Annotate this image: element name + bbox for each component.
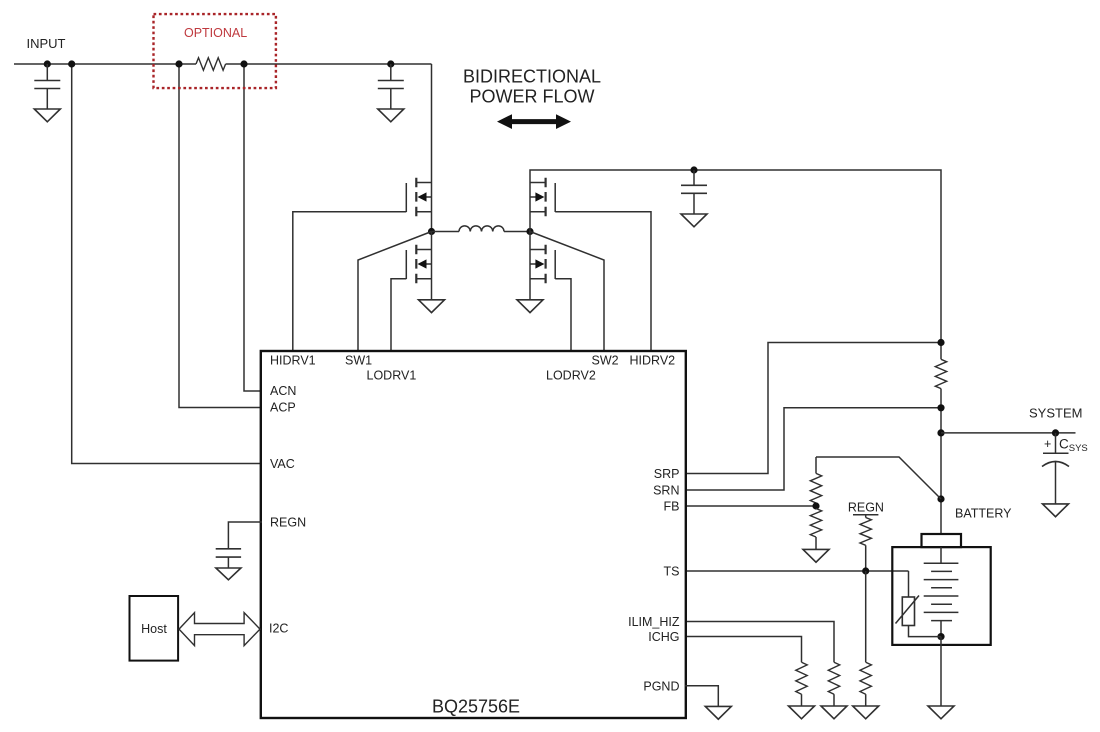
- svg-text:I2C: I2C: [269, 622, 288, 636]
- svg-text:LODRV2: LODRV2: [546, 369, 596, 383]
- svg-text:BIDIRECTIONAL: BIDIRECTIONAL: [463, 67, 601, 87]
- svg-text:REGN: REGN: [270, 516, 306, 530]
- svg-text:ILIM_HIZ: ILIM_HIZ: [628, 615, 680, 629]
- svg-text:SRN: SRN: [653, 484, 679, 498]
- svg-text:ACP: ACP: [270, 401, 296, 415]
- svg-text:BQ25756E: BQ25756E: [432, 697, 520, 717]
- svg-text:FB: FB: [664, 500, 680, 514]
- svg-text:SW1: SW1: [345, 354, 372, 368]
- svg-text:POWER FLOW: POWER FLOW: [470, 87, 595, 107]
- svg-text:LODRV1: LODRV1: [367, 369, 417, 383]
- svg-text:SW2: SW2: [592, 354, 619, 368]
- svg-text:CSYS: CSYS: [1059, 437, 1088, 455]
- svg-text:+: +: [1044, 437, 1051, 451]
- svg-text:TS: TS: [664, 565, 680, 579]
- svg-text:REGN: REGN: [848, 500, 884, 514]
- svg-text:SRP: SRP: [654, 467, 680, 481]
- svg-text:HIDRV2: HIDRV2: [630, 354, 676, 368]
- svg-text:INPUT: INPUT: [27, 36, 66, 51]
- svg-text:ICHG: ICHG: [648, 630, 679, 644]
- svg-text:Host: Host: [141, 622, 167, 636]
- svg-text:OPTIONAL: OPTIONAL: [184, 26, 247, 40]
- svg-text:HIDRV1: HIDRV1: [270, 354, 316, 368]
- svg-text:VAC: VAC: [270, 457, 295, 471]
- svg-text:ACN: ACN: [270, 384, 296, 398]
- svg-text:PGND: PGND: [643, 680, 679, 694]
- svg-text:SYSTEM: SYSTEM: [1029, 406, 1082, 421]
- svg-text:BATTERY: BATTERY: [955, 507, 1012, 521]
